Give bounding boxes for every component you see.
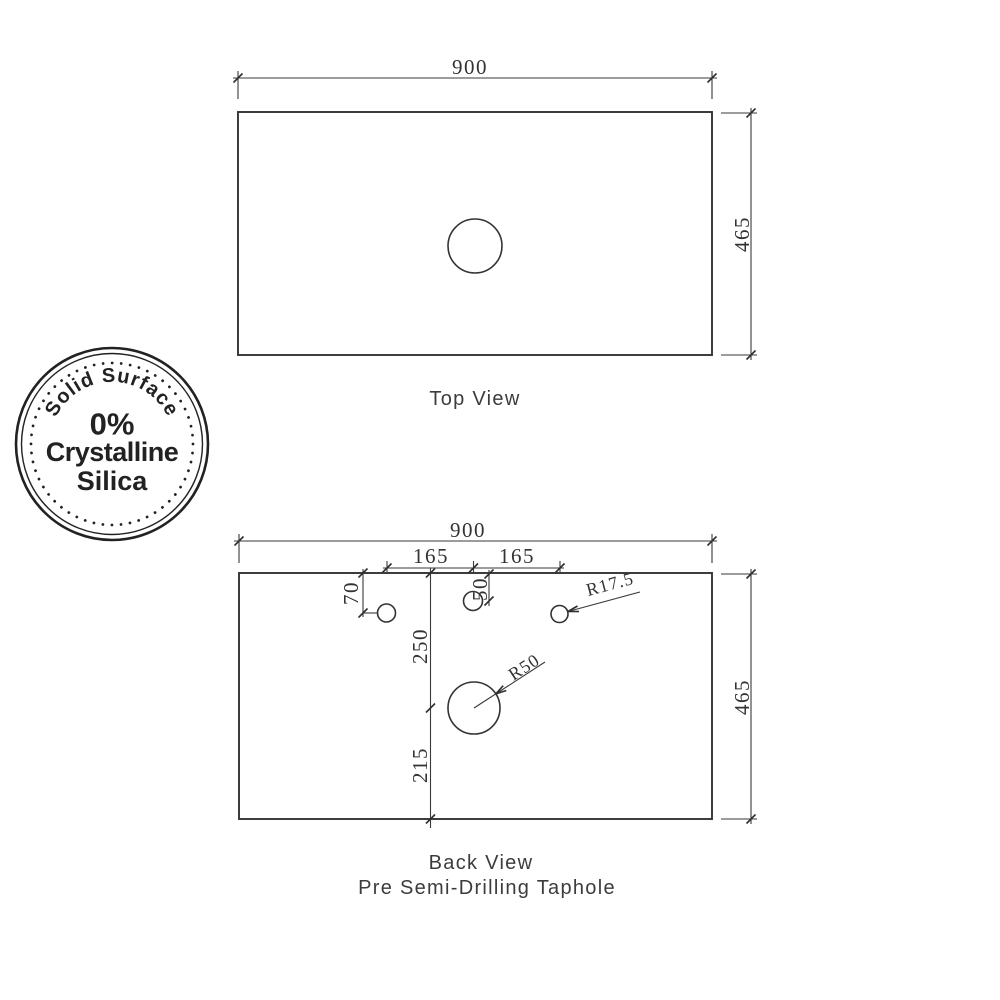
right-spacing-value: 165 bbox=[499, 544, 535, 568]
vertical-offset-dimension: 250 215 bbox=[408, 568, 435, 828]
back-view-width-dimension: 900 bbox=[234, 518, 717, 563]
silica-badge: Solid Surface 0% Crystalline Silica bbox=[16, 348, 208, 540]
back-width-value: 900 bbox=[450, 518, 486, 542]
center-hole-offset-value: 50 bbox=[468, 577, 492, 601]
badge-silica-text: Silica bbox=[77, 466, 149, 496]
back-height-value: 465 bbox=[730, 679, 754, 715]
top-view-outline bbox=[238, 112, 712, 355]
back-view: 900 465 165 165 bbox=[234, 518, 757, 899]
back-view-sublabel: Pre Semi-Drilling Taphole bbox=[358, 877, 616, 899]
taphole-spacing-dimension: 165 165 bbox=[383, 544, 565, 574]
back-view-height-dimension: 465 bbox=[721, 569, 757, 824]
top-view-label: Top View bbox=[429, 388, 520, 410]
badge-crystalline-text: Crystalline bbox=[46, 437, 179, 467]
product-dimension-drawing: 900 465 Top View 900 bbox=[0, 0, 1000, 1000]
drain-radius-callout: R50 bbox=[474, 650, 545, 708]
upper-offset-value: 250 bbox=[408, 628, 432, 664]
drain-radius-value: R50 bbox=[505, 650, 544, 685]
top-view-drain-hole bbox=[448, 219, 502, 273]
top-view-width-dimension: 900 bbox=[233, 55, 717, 99]
top-view-height-dimension: 465 bbox=[721, 108, 757, 360]
top-height-value: 465 bbox=[730, 216, 754, 252]
back-view-label: Back View bbox=[429, 852, 534, 874]
top-view: 900 465 Top View bbox=[233, 55, 757, 410]
left-hole-offset-value: 70 bbox=[339, 581, 363, 605]
taphole-radius-callout: R17.5 bbox=[568, 568, 640, 611]
right-taphole bbox=[551, 606, 568, 623]
top-width-value: 900 bbox=[452, 55, 488, 79]
left-hole-offset-dimension: 70 bbox=[339, 569, 378, 618]
drawing-svg: 900 465 Top View 900 bbox=[0, 0, 1000, 1000]
center-hole-offset-dimension: 50 bbox=[468, 570, 494, 607]
left-spacing-value: 165 bbox=[413, 544, 449, 568]
left-taphole bbox=[378, 604, 396, 622]
lower-offset-value: 215 bbox=[408, 747, 432, 783]
